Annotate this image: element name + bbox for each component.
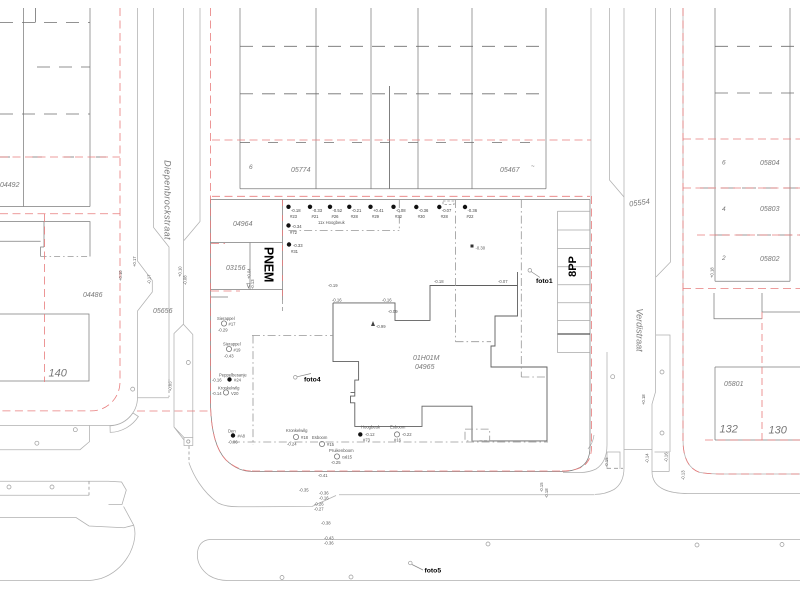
svg-text:#72: #72 bbox=[290, 230, 298, 235]
svg-text:04486: 04486 bbox=[83, 292, 103, 299]
svg-text:Den: Den bbox=[228, 429, 236, 434]
svg-text:-0.13: -0.13 bbox=[250, 279, 255, 289]
svg-text:-0.16: -0.16 bbox=[332, 298, 342, 303]
svg-text:6: 6 bbox=[722, 160, 726, 167]
svg-text:05554: 05554 bbox=[629, 197, 651, 209]
svg-text:#24: #24 bbox=[234, 378, 242, 383]
svg-text:#17: #17 bbox=[229, 322, 237, 327]
svg-text:132: 132 bbox=[720, 424, 738, 436]
svg-text:foto1: foto1 bbox=[536, 278, 553, 285]
svg-text:Hoogbeuk: Hoogbeuk bbox=[361, 425, 381, 430]
svg-text:-0.36: -0.36 bbox=[468, 208, 478, 213]
svg-text:#32: #32 bbox=[395, 214, 403, 219]
svg-text:#16: #16 bbox=[394, 438, 402, 443]
svg-text:-0.17: -0.17 bbox=[147, 274, 152, 284]
svg-text:Kronkelwilg: Kronkelwilg bbox=[218, 386, 240, 391]
svg-text:130: 130 bbox=[769, 425, 788, 437]
svg-text:4: 4 bbox=[722, 206, 726, 213]
svg-text:-0.43: -0.43 bbox=[224, 354, 234, 359]
svg-text:#28: #28 bbox=[351, 214, 359, 219]
svg-text:-0.18: -0.18 bbox=[434, 279, 444, 284]
svg-text:-0.21: -0.21 bbox=[352, 208, 362, 213]
svg-text:Diepenbrockstraat: Diepenbrockstraat bbox=[163, 160, 173, 240]
svg-text:Pruikenboom: Pruikenboom bbox=[329, 448, 354, 453]
svg-text:+0.41: +0.41 bbox=[373, 208, 384, 213]
svg-text:-0.14: -0.14 bbox=[212, 391, 222, 396]
svg-text:-0.07: -0.07 bbox=[442, 208, 452, 213]
svg-text:Esboom: Esboom bbox=[312, 435, 328, 440]
svg-text:-0.30: -0.30 bbox=[476, 246, 486, 251]
svg-text:-0.99: -0.99 bbox=[376, 324, 386, 329]
svg-text:#23: #23 bbox=[290, 214, 298, 219]
svg-text:05774: 05774 bbox=[291, 167, 311, 174]
svg-text:-0.33: -0.33 bbox=[293, 243, 303, 248]
svg-text:+0.17: +0.17 bbox=[132, 256, 137, 267]
svg-text:-0.07: -0.07 bbox=[498, 279, 508, 284]
svg-text:140: 140 bbox=[49, 368, 68, 380]
svg-text:05804: 05804 bbox=[760, 160, 780, 167]
svg-text:#31: #31 bbox=[291, 249, 299, 254]
svg-text:#22: #22 bbox=[467, 214, 475, 219]
svg-text:-0.25: -0.25 bbox=[331, 460, 341, 465]
svg-text:03156: 03156 bbox=[226, 265, 246, 272]
svg-text:-0.27: -0.27 bbox=[314, 507, 324, 512]
svg-text:#19: #19 bbox=[234, 348, 242, 353]
svg-text:Kronkelwilg: Kronkelwilg bbox=[286, 428, 308, 433]
svg-text:-0.16: -0.16 bbox=[319, 496, 329, 501]
svg-text:05656: 05656 bbox=[153, 308, 173, 315]
svg-text:-0.19: -0.19 bbox=[328, 283, 338, 288]
svg-text:-0.09: -0.09 bbox=[388, 309, 398, 314]
svg-text:foto5: foto5 bbox=[425, 568, 442, 575]
svg-text:#30: #30 bbox=[418, 214, 426, 219]
svg-text:-0.06: -0.06 bbox=[228, 440, 238, 445]
svg-text:-0.29: -0.29 bbox=[218, 328, 228, 333]
svg-text:-0.08: -0.08 bbox=[396, 208, 406, 213]
svg-text:11x Hoogbeuk: 11x Hoogbeuk bbox=[318, 220, 346, 225]
svg-text:Verdistraat: Verdistraat bbox=[635, 308, 645, 352]
svg-text:Sierappel: Sierappel bbox=[217, 316, 235, 321]
svg-text:04965: 04965 bbox=[415, 364, 435, 371]
svg-text:-0.15: -0.15 bbox=[604, 457, 609, 467]
svg-text:6: 6 bbox=[249, 164, 253, 171]
svg-text:-0.12: -0.12 bbox=[365, 432, 375, 437]
svg-text:04964: 04964 bbox=[233, 221, 253, 228]
svg-text:05467: 05467 bbox=[500, 167, 521, 174]
svg-text:#28: #28 bbox=[441, 214, 449, 219]
svg-text:-0.22: -0.22 bbox=[402, 432, 412, 437]
svg-text:-0.52: -0.52 bbox=[333, 208, 343, 213]
svg-text:#29: #29 bbox=[372, 214, 380, 219]
svg-text:-0.16: -0.16 bbox=[664, 452, 669, 462]
svg-text:+0.18: +0.18 bbox=[710, 267, 715, 278]
svg-text:-0.34: -0.34 bbox=[292, 224, 302, 229]
svg-text:-0.16: -0.16 bbox=[212, 378, 222, 383]
svg-text:cal15: cal15 bbox=[342, 455, 353, 460]
svg-text:-0.18: -0.18 bbox=[544, 488, 549, 498]
svg-text:+0.04: +0.04 bbox=[247, 268, 252, 279]
svg-text:#73: #73 bbox=[363, 438, 371, 443]
svg-text:V20: V20 bbox=[231, 391, 239, 396]
svg-text:-0.36: -0.36 bbox=[324, 541, 334, 546]
svg-text:-0.33: -0.33 bbox=[313, 208, 323, 213]
svg-text:-0.24: -0.24 bbox=[287, 442, 297, 447]
svg-text:-0.36: -0.36 bbox=[419, 208, 429, 213]
svg-text:+0.10: +0.10 bbox=[178, 266, 183, 277]
svg-text:~: ~ bbox=[531, 164, 535, 170]
svg-text:8PP: 8PP bbox=[567, 256, 579, 277]
svg-text:foto4: foto4 bbox=[304, 377, 321, 384]
svg-text:+0.18: +0.18 bbox=[641, 394, 646, 405]
svg-text:#21: #21 bbox=[312, 214, 320, 219]
svg-text:-0.38: -0.38 bbox=[321, 521, 331, 526]
svg-text:PNEM: PNEM bbox=[262, 247, 276, 282]
svg-text:05801: 05801 bbox=[724, 381, 744, 388]
svg-text:#A8: #A8 bbox=[238, 434, 246, 439]
svg-text:2: 2 bbox=[721, 255, 726, 262]
svg-text:#18: #18 bbox=[301, 435, 309, 440]
svg-text:Esboom: Esboom bbox=[390, 425, 406, 430]
svg-text:-0.41: -0.41 bbox=[318, 473, 328, 478]
svg-text:+0.10: +0.10 bbox=[118, 270, 123, 281]
svg-text:04492: 04492 bbox=[0, 182, 20, 189]
svg-text:-0.13: -0.13 bbox=[681, 470, 686, 480]
svg-text:-0.18: -0.18 bbox=[291, 208, 301, 213]
svg-text:05802: 05802 bbox=[760, 256, 780, 263]
svg-text:-0.05: -0.05 bbox=[168, 381, 173, 391]
svg-text:01H01M: 01H01M bbox=[413, 355, 440, 362]
svg-text:-0.14: -0.14 bbox=[645, 453, 650, 463]
svg-text:#15: #15 bbox=[327, 442, 335, 447]
svg-text:-0.08: -0.08 bbox=[183, 275, 188, 285]
svg-text:05803: 05803 bbox=[760, 206, 780, 213]
svg-text:#26: #26 bbox=[332, 214, 340, 219]
svg-text:-0.16: -0.16 bbox=[382, 298, 392, 303]
svg-text:-0.35: -0.35 bbox=[299, 488, 309, 493]
svg-text:Sierappel: Sierappel bbox=[223, 342, 241, 347]
